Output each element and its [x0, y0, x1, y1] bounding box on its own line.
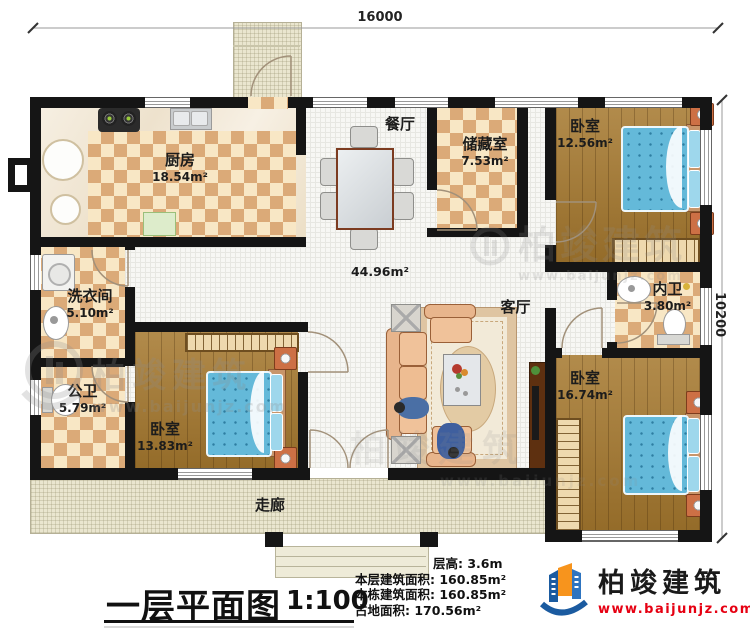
company-logo: 柏竣建筑 www.baijunjz.com — [538, 560, 750, 618]
corner-table — [391, 436, 421, 464]
table-dot — [455, 387, 460, 392]
round-basin-small — [50, 194, 81, 225]
floor-area-stat: 本层建筑面积: 160.85m² — [355, 572, 506, 588]
wall — [298, 372, 308, 468]
plant — [531, 366, 540, 375]
land-area-stat: 占地面积: 170.56m² — [355, 603, 506, 619]
sofa-cushion — [399, 366, 427, 400]
company-logo-icon — [538, 560, 590, 618]
room-label-bedroom-bl: 卧室 13.83m² — [120, 421, 210, 453]
wall — [125, 237, 135, 250]
porch-post — [420, 532, 438, 547]
company-name: 柏竣建筑 — [598, 561, 750, 600]
wall — [607, 272, 617, 300]
window — [582, 530, 678, 542]
window — [700, 415, 712, 490]
pillow — [687, 418, 700, 454]
sink-basin — [191, 111, 208, 126]
wall — [607, 342, 617, 348]
wardrobe — [612, 238, 700, 264]
floor-height-stat: 层高: 3.6m — [355, 556, 506, 572]
wall — [298, 322, 308, 332]
wall — [367, 97, 395, 108]
wall — [30, 237, 306, 247]
window — [30, 380, 41, 415]
dimension-height: 10200 — [712, 292, 727, 337]
dimension-tick — [713, 23, 723, 33]
table-dot — [463, 391, 468, 396]
title-underline — [104, 620, 354, 623]
tv — [532, 386, 539, 440]
dining-chair — [392, 158, 414, 186]
room-label-living: 客厅 — [488, 299, 543, 317]
wall — [700, 205, 712, 288]
wall — [427, 97, 437, 190]
toilet-tank — [657, 334, 690, 345]
person-head — [394, 402, 405, 413]
wall — [125, 322, 308, 332]
company-website: www.baijunjz.com — [598, 602, 750, 617]
wall — [700, 97, 712, 130]
porch-step-line — [233, 45, 300, 47]
room-label-public-bath: 公卫 5.79m² — [45, 383, 120, 415]
room-label-bedroom-tr: 卧室 12.56m² — [540, 118, 630, 150]
entry-threshold — [248, 97, 288, 109]
floor-plan-canvas: 16000 10200 厨房 18.54m² 餐厅 储藏室 7.53m² 卧室 … — [0, 0, 750, 632]
dining-table — [336, 148, 394, 230]
wall — [30, 290, 41, 380]
washer-drum — [48, 263, 71, 286]
window — [178, 468, 252, 480]
room-label-bedroom-br: 卧室 16.74m² — [540, 370, 630, 402]
title-underline-light — [104, 626, 354, 628]
wall — [578, 97, 605, 108]
stove-burner — [121, 111, 136, 126]
kitchen-tile-floor — [88, 131, 296, 237]
window — [605, 97, 682, 108]
building-area-stat: 本栋建筑面积: 160.85m² — [355, 587, 506, 603]
window — [313, 97, 367, 108]
entry-porch — [233, 22, 302, 99]
hall-area-label: 44.96m² — [340, 265, 420, 280]
person-head — [448, 447, 459, 458]
pillow — [270, 413, 283, 451]
dimension-width: 16000 — [350, 10, 410, 25]
wall — [190, 97, 248, 108]
stove-burner — [102, 111, 117, 126]
nightstand — [274, 347, 297, 370]
sink-basin — [173, 111, 190, 126]
room-label-ensuite: 内卫 3.80m² — [630, 281, 705, 313]
window — [145, 97, 190, 108]
dining-chair — [350, 228, 378, 250]
sofa-cushion — [399, 332, 427, 366]
wall — [296, 97, 306, 155]
room-label-storage: 储藏室 7.53m² — [440, 136, 530, 168]
wardrobe — [556, 418, 581, 532]
dining-chair — [392, 192, 414, 220]
dimension-tick — [28, 23, 38, 33]
wall — [448, 97, 495, 108]
coffee-table — [443, 354, 481, 406]
armchair-seat — [430, 317, 472, 343]
wall — [252, 468, 310, 480]
wall — [545, 468, 556, 542]
wall — [41, 358, 125, 367]
window — [495, 97, 578, 108]
wall — [427, 228, 528, 237]
dimension-tick — [717, 533, 727, 543]
window — [700, 130, 712, 205]
cutting-board — [143, 212, 176, 236]
room-label-kitchen: 厨房 18.54m² — [130, 152, 230, 184]
public-bath-floor — [41, 365, 125, 468]
pillow — [270, 374, 283, 412]
wall — [30, 468, 178, 480]
wall — [545, 262, 712, 272]
room-label-dining: 餐厅 — [370, 116, 430, 134]
room-label-laundry: 洗衣间 5.10m² — [50, 288, 130, 320]
wall — [388, 468, 545, 480]
wall — [678, 530, 712, 542]
wall — [30, 97, 145, 108]
leaf-decor — [456, 373, 462, 379]
wall — [545, 348, 562, 358]
pillow — [687, 456, 700, 492]
porch-post — [265, 532, 283, 547]
window — [395, 97, 448, 108]
flue-box — [8, 158, 34, 192]
corner-table — [391, 304, 421, 332]
dimension-tick — [717, 95, 727, 105]
round-basin-large — [42, 139, 84, 181]
stats-block: 层高: 3.6m 本层建筑面积: 160.85m² 本栋建筑面积: 160.85… — [355, 556, 506, 618]
flower-decor — [461, 369, 468, 376]
window — [30, 255, 41, 290]
wall — [602, 348, 712, 358]
room-label-corridor: 走廊 — [240, 497, 300, 515]
